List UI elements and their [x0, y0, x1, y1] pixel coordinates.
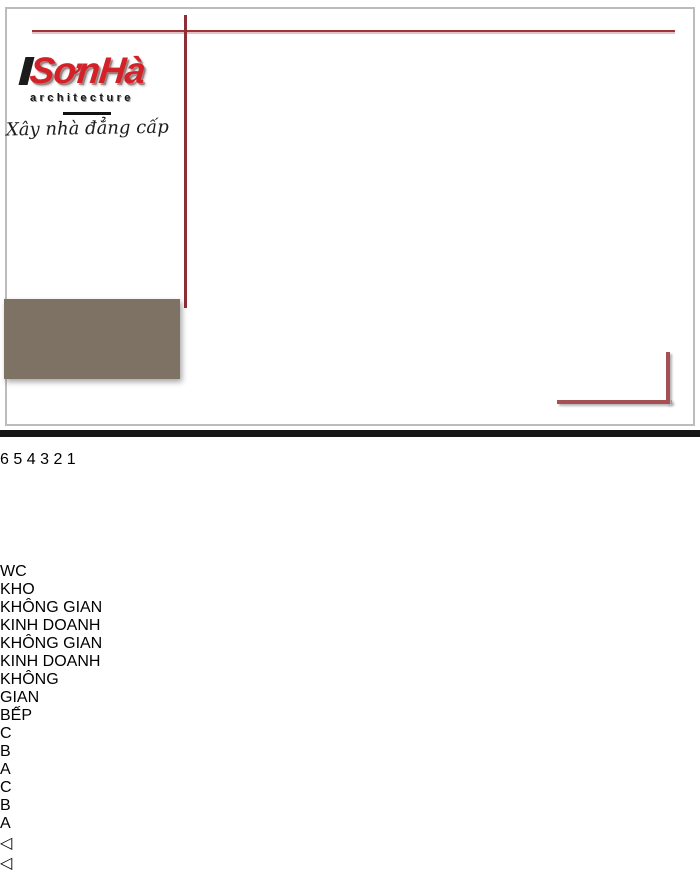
- grid-marker-a-left: A: [0, 761, 700, 779]
- stair-step: 3: [40, 451, 49, 468]
- watermark-line1: SơnHà: [0, 873, 700, 874]
- stair-step: 1: [67, 451, 76, 468]
- kitchen-label: KHÔNG GIAN BẾP: [0, 671, 70, 725]
- entrance-arrow-icon: ◁: [0, 853, 700, 873]
- red-accent-bracket-horizontal: [557, 400, 672, 404]
- watermark: SơnHà architecture: [0, 873, 700, 874]
- screen: SơnHà architecture Xây nhà đẳng cấp Hotl…: [0, 0, 700, 437]
- logo-divider: [63, 112, 111, 115]
- brand-tagline: Xây nhà đẳng cấp: [6, 117, 178, 141]
- kitchen-counter-left: [0, 469, 32, 536]
- sonha-logo: SơnHà: [28, 50, 147, 92]
- stair-step: 5: [13, 451, 22, 468]
- hotline-banner: Hotline 0906.222.555: [4, 299, 180, 379]
- stair-step: 6: [0, 451, 9, 468]
- red-accent-bracket-vertical: [666, 352, 670, 404]
- red-accent-line-left: [184, 15, 187, 308]
- torn-paper-shape: [4, 299, 180, 379]
- logo-subtitle: architecture: [30, 92, 134, 104]
- bathroom: WC: [0, 563, 700, 581]
- business-space-label-upper: KHÔNG GIAN KINH DOANH: [0, 599, 120, 635]
- staircase: 6 5 4 3 2 1: [0, 451, 700, 469]
- grid-marker-a-right: A: [0, 815, 700, 833]
- wc-label: WC: [0, 563, 700, 581]
- business-space-label-lower: KHÔNG GIAN KINH DOANH: [0, 635, 120, 671]
- grid-marker-c-right: C: [0, 779, 700, 797]
- bottom-black-bar: [0, 430, 700, 437]
- storage-room-label: KHO: [0, 581, 60, 599]
- stair-step-numbers: 6 5 4 3 2 1: [0, 451, 700, 469]
- stair-step: 4: [27, 451, 36, 468]
- grid-marker-b-right: B: [0, 797, 700, 815]
- stair-step: 2: [53, 451, 62, 468]
- grid-marker-c-left: C: [0, 725, 700, 743]
- entrance-arrow-icon: ◁: [0, 833, 700, 853]
- grid-marker-b-left: B: [0, 743, 700, 761]
- red-accent-line-top: [32, 30, 675, 32]
- kitchen-counter-bottom: [0, 536, 99, 563]
